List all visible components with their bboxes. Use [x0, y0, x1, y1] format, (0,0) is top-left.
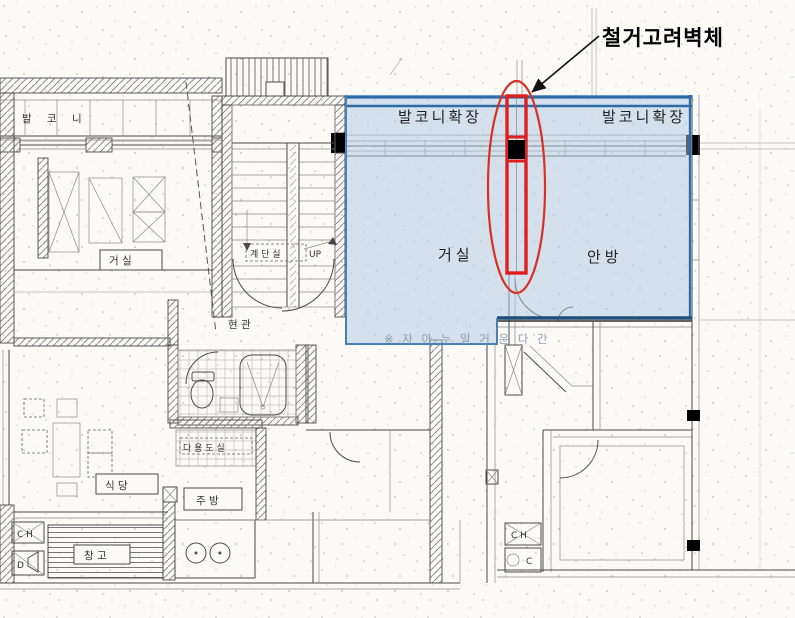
c-right-label: C — [526, 557, 532, 567]
entrance-label: 현 관 — [228, 319, 251, 331]
d-left-label: D — [17, 561, 24, 571]
balcony-extension-left-label: 발코니확장 — [398, 108, 482, 126]
up-label: UP — [309, 250, 322, 260]
kitchen-label: 주 방 — [196, 495, 219, 507]
stairwell-label: 계 단 실 — [250, 248, 281, 260]
ch-right-label: C H — [511, 531, 527, 541]
faint-note-text: ※ 자 아 누 일 거 운 다 간 — [384, 332, 550, 346]
demolition-callout-label: 철거고려벽체 — [602, 26, 724, 50]
living-room-label: 거실 — [438, 246, 474, 264]
floorplan-drawing: 철거고려벽체 발코니확장 발코니확장 거실 안방 ※ 자 아 누 일 거 운 다… — [0, 0, 795, 618]
left-balcony-label: 발 코 니 — [22, 113, 88, 125]
floorplan-screenshot: 철거고려벽체 발코니확장 발코니확장 거실 안방 ※ 자 아 누 일 거 운 다… — [0, 0, 795, 618]
left-living-label: 거 실 — [109, 255, 132, 267]
ch-left-label: C H — [17, 530, 33, 540]
utility-room-label: 다 용 도 실 — [183, 443, 225, 454]
storage-label: 창 고 — [84, 550, 107, 562]
bathroom-tiled-floor — [178, 350, 296, 417]
expansion-area-fill — [345, 95, 692, 345]
column-center — [508, 140, 525, 159]
expansion-overlay — [345, 95, 692, 345]
master-bedroom-label: 안방 — [587, 248, 623, 266]
balcony-extension-right-label: 발코니확장 — [602, 108, 686, 126]
left-dining-label: 식 당 — [105, 480, 128, 492]
